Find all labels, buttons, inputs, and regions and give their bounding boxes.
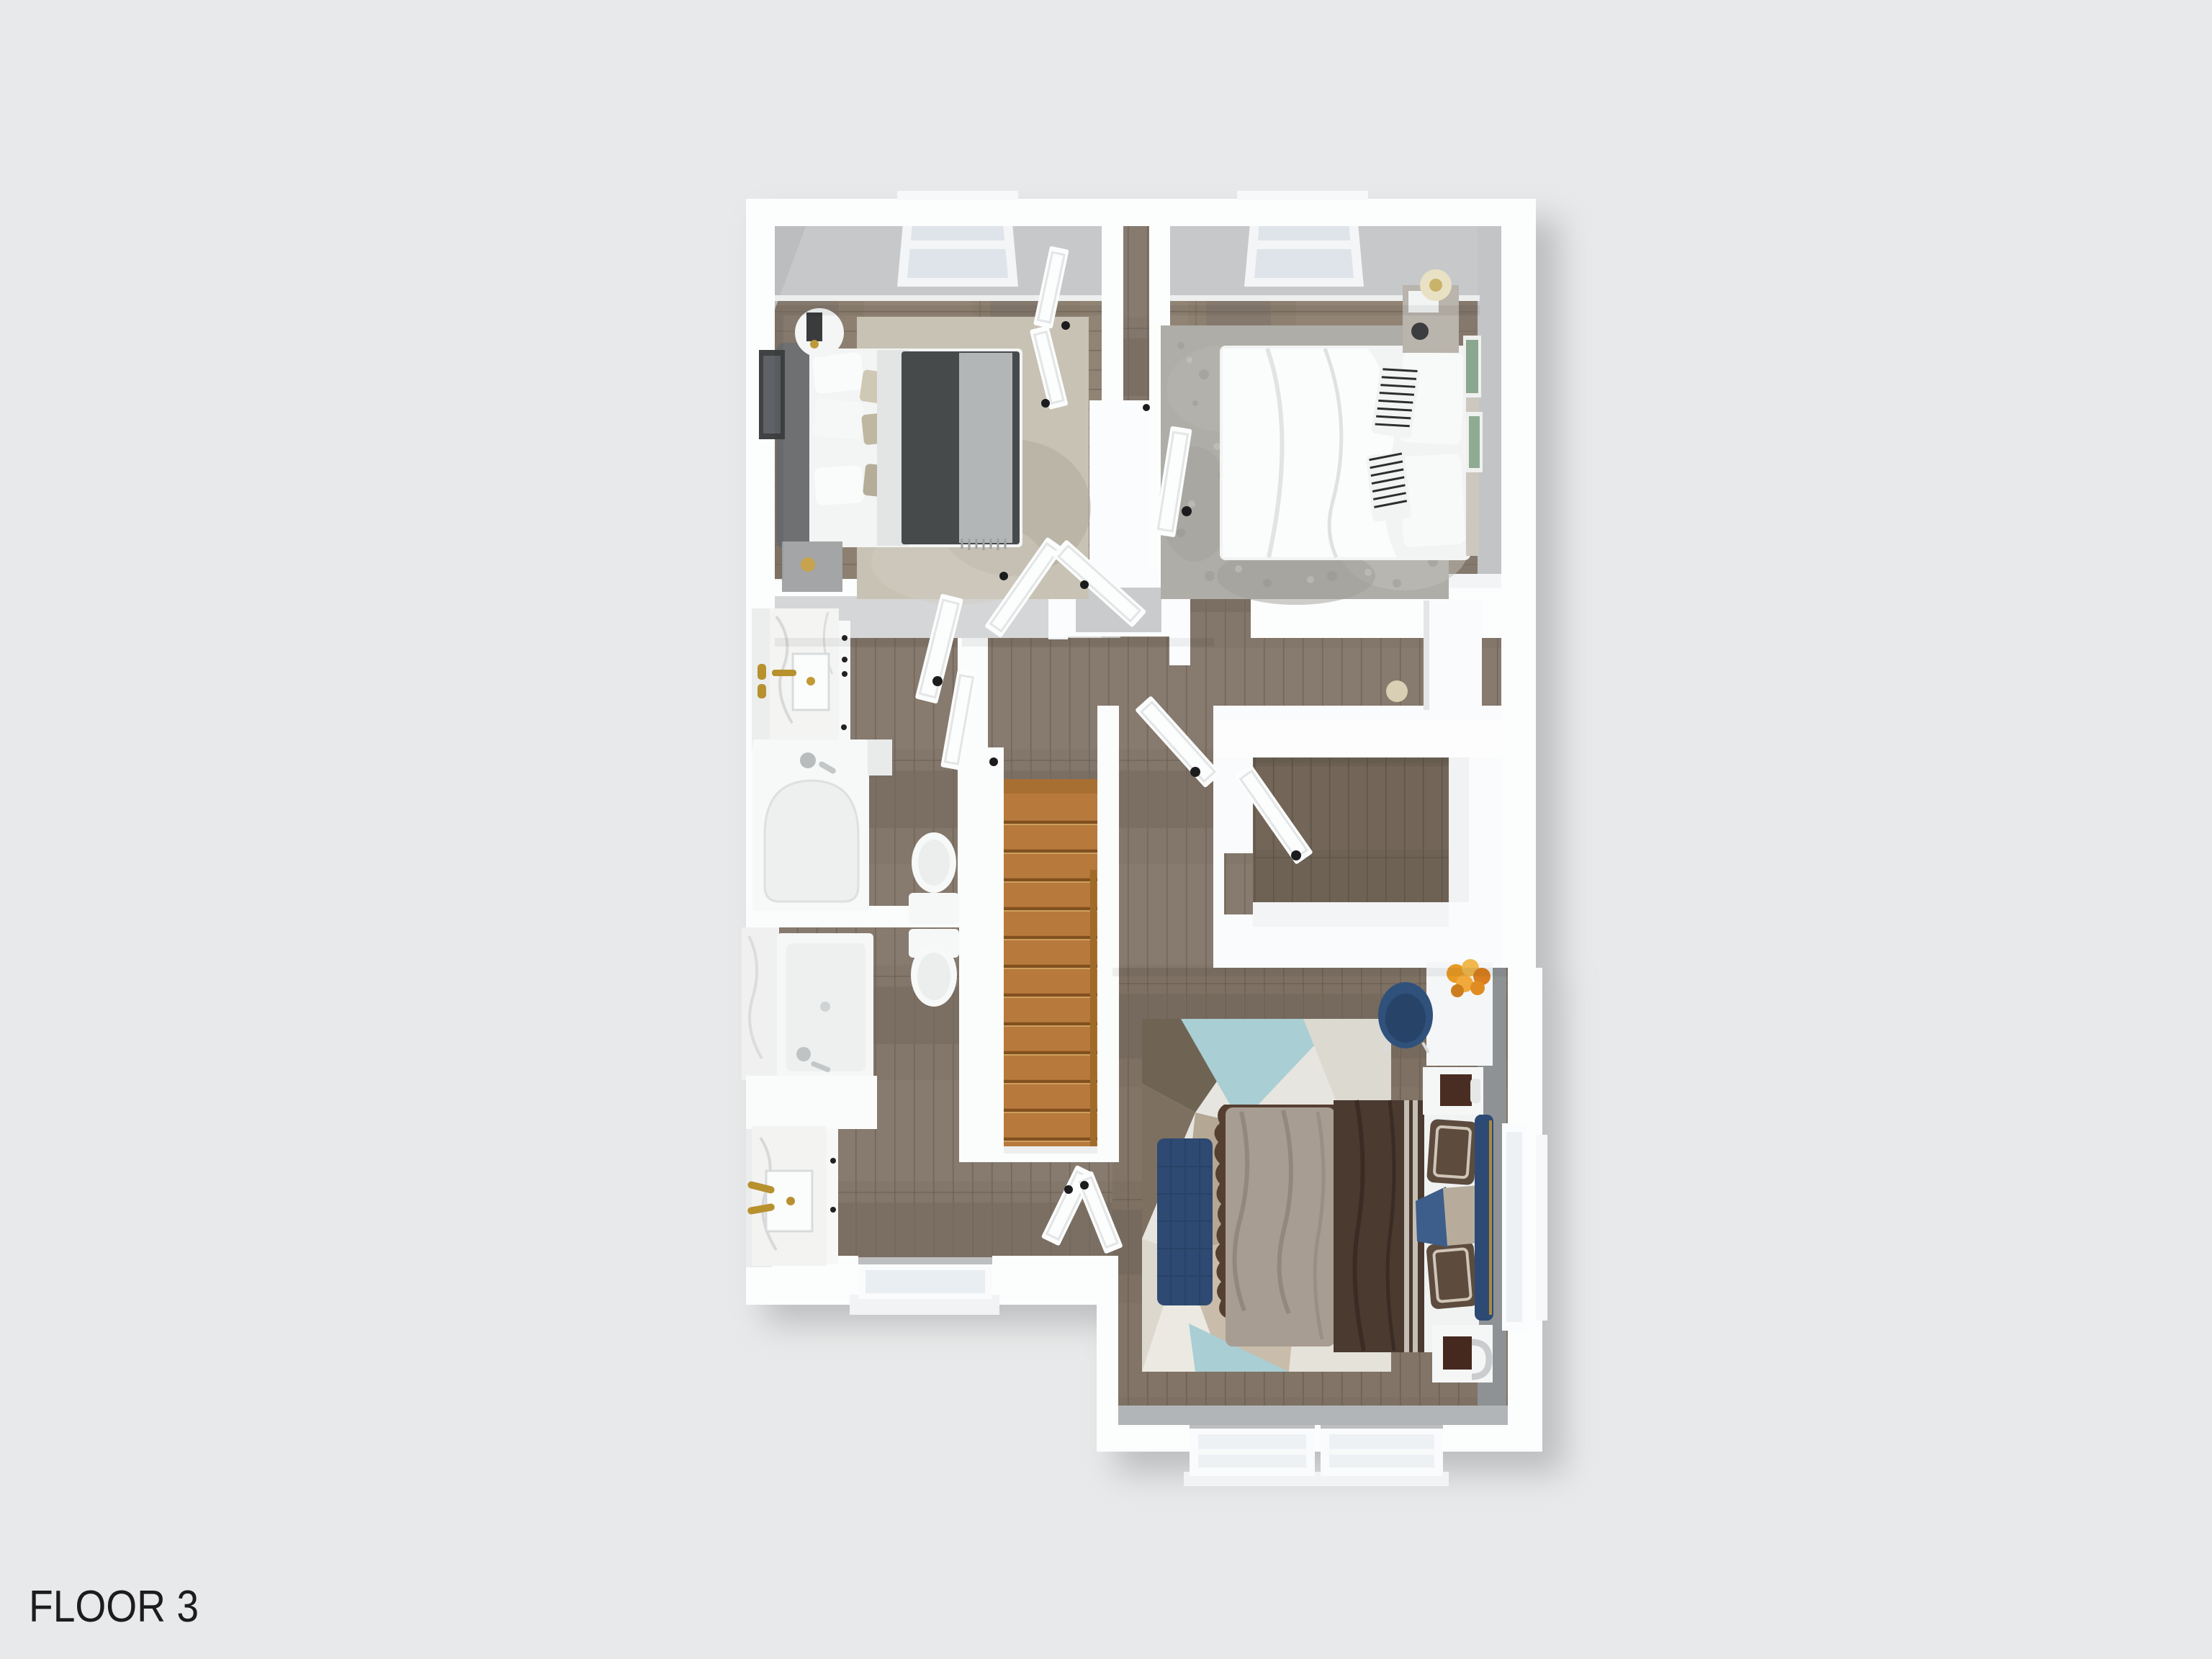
svg-text:FLOOR 3: FLOOR 3 [29, 1582, 199, 1632]
